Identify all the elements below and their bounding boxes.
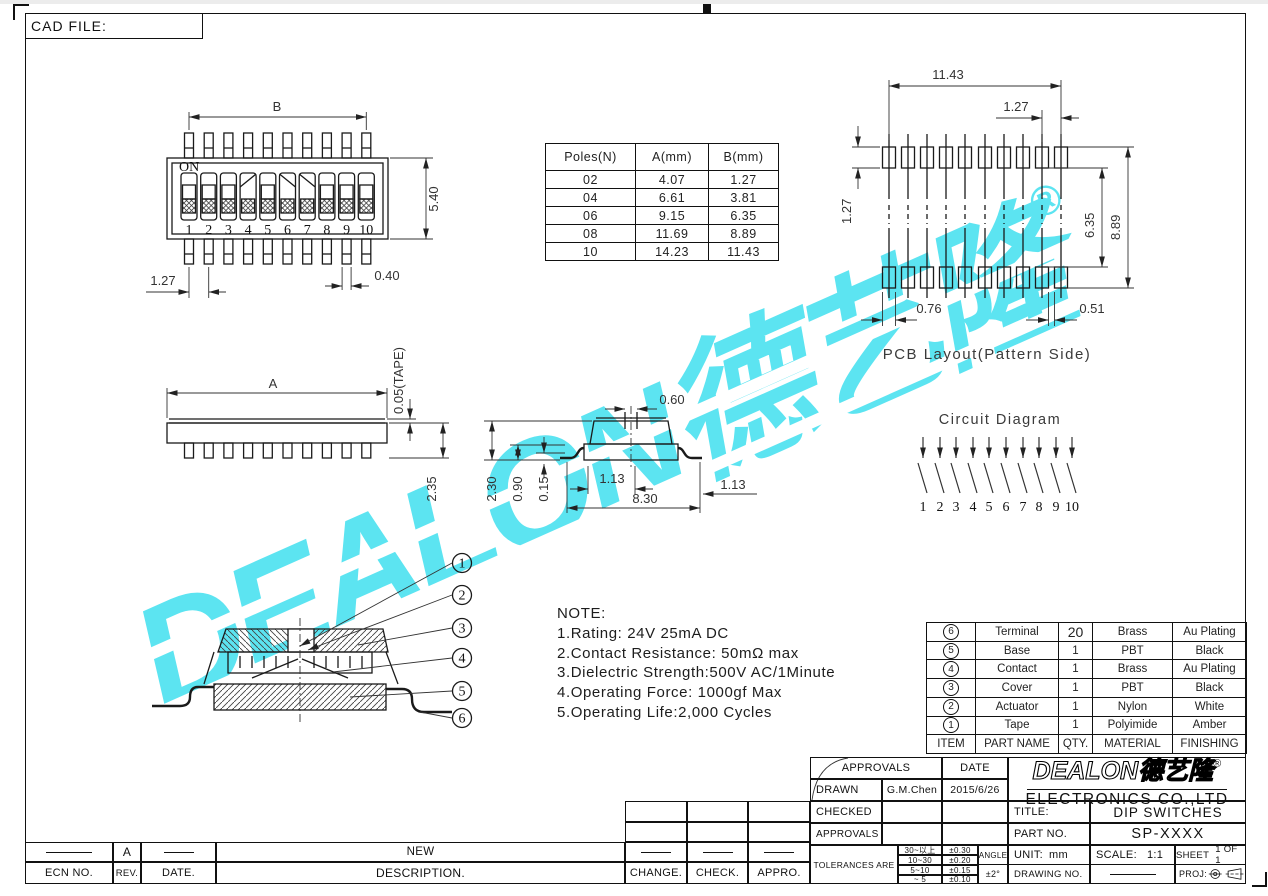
bom-part-name: Contact (976, 660, 1059, 679)
change-header-cell: CHANGE. (625, 862, 687, 884)
check-entry-cell (687, 842, 748, 862)
revision-empty-cell (687, 801, 748, 822)
position-number: 5 (264, 223, 271, 238)
position-number: 8 (323, 223, 330, 238)
blank-line (703, 852, 733, 853)
registered-mark-icon: ® (1213, 758, 1221, 770)
bom-material: Polyimide (1093, 717, 1173, 736)
tolerance-value: ±0.30 (942, 845, 978, 855)
revision-empty-cell (625, 801, 687, 822)
cell: 04 (546, 189, 636, 207)
section-view: 0.60 2.30 0.90 0.15 1.13 8.30 1.13 (484, 392, 757, 513)
revision-empty-cell (687, 822, 748, 842)
note-line: 3.Dielectric Strength:500V AC/1Minute (557, 663, 835, 683)
callout-number: 4 (459, 652, 466, 667)
cad-file-label: CAD FILE: (31, 18, 107, 34)
dim-lead-left: 1.13 (599, 471, 624, 486)
approved-date-cell (942, 823, 1008, 845)
part-no-label-cell: PART NO. (1008, 823, 1090, 845)
blank-line (46, 852, 92, 853)
tolerance-value: ±0.15 (942, 865, 978, 875)
angle-value-cell: ±2° (978, 864, 1008, 884)
cell: 3.81 (709, 189, 779, 207)
dim-pad-gap: 0.51 (1079, 301, 1104, 316)
bom-material: Brass (1093, 623, 1173, 642)
title-label-cell: TITLE: (1008, 801, 1090, 823)
bom-qty: 1 (1059, 660, 1093, 679)
bom-finish: Black (1173, 679, 1247, 698)
position-number: 9 (343, 223, 350, 238)
check-header-cell: CHECK. (687, 862, 748, 884)
blank-line (764, 852, 794, 853)
cell: 6.61 (636, 189, 709, 207)
dim-lead-right: 1.13 (720, 477, 745, 492)
cell: 11.69 (636, 225, 709, 243)
sheet-cell: SHEET1 OF 1 (1175, 845, 1246, 865)
on-label: ON (179, 160, 199, 175)
dim-830: 8.30 (632, 491, 657, 506)
checked-label-cell: CHECKED (810, 801, 882, 823)
date-entry-cell (141, 842, 216, 862)
engineering-drawing-sheet: DEALON德艺隆® CAD FILE: (0, 0, 1268, 896)
bom-material: PBT (1093, 679, 1173, 698)
bom-item: 4 (927, 660, 976, 679)
bom-header: ITEM (927, 735, 976, 754)
bom-item: 1 (927, 717, 976, 736)
dim-pcb-outer: 8.89 (1108, 215, 1123, 240)
dim-a: A (269, 376, 278, 391)
bom-qty: 1 (1059, 642, 1093, 661)
checked-date-cell (942, 801, 1008, 823)
note-line: 5.Operating Life:2,000 Cycles (557, 703, 835, 723)
circuit-number: 10 (1065, 500, 1079, 515)
cell: 06 (546, 207, 636, 225)
tolerances-label-cell: TOLERANCES ARE (810, 845, 898, 884)
checked-by-cell (882, 801, 942, 823)
notes: NOTE: 1.Rating: 24V 25mA DC 2.Contact Re… (557, 604, 835, 723)
pcb-layout-title: PCB Layout(Pattern Side) (883, 346, 1092, 363)
circuit-number: 9 (1053, 500, 1060, 515)
description-header-cell: DESCRIPTION. (216, 862, 625, 884)
blank-line (1110, 874, 1156, 875)
date-header-cell: DATE. (141, 862, 216, 884)
poles-table: Poles(N) A(mm) B(mm) 024.071.27 046.613.… (545, 143, 779, 261)
scale-cell: SCALE:1:1 (1090, 845, 1175, 865)
bom-item: 3 (927, 679, 976, 698)
dim-tape: 0.05(TAPE) (391, 347, 406, 414)
bom-finish: White (1173, 698, 1247, 717)
position-number: 10 (359, 223, 373, 238)
bom-qty: 1 (1059, 717, 1093, 736)
callout-number: 5 (459, 685, 466, 700)
dim-pad-width: 0.76 (916, 301, 941, 316)
callout-number: 3 (459, 622, 466, 637)
circled-number: 5 (943, 643, 959, 659)
bom-finish: Amber (1173, 717, 1247, 736)
bom-finish: Au Plating (1173, 623, 1247, 642)
blank-line (164, 852, 194, 853)
blank-line (641, 852, 671, 853)
callout-number: 6 (459, 712, 466, 727)
cell: 08 (546, 225, 636, 243)
unit-cell: UNIT:mm (1008, 845, 1090, 865)
circuit-number: 4 (970, 500, 977, 515)
bom-item: 2 (927, 698, 976, 717)
tolerance-value: ±0.10 (942, 875, 978, 884)
angle-label-cell: ANGLE (978, 845, 1008, 865)
bom-qty: 1 (1059, 679, 1093, 698)
drawing-no-value-cell (1090, 864, 1175, 884)
circuit-number: 1 (920, 500, 927, 515)
tolerance-range: ~ 5 (898, 875, 942, 884)
bom-table: 6 Terminal 20 Brass Au Plating 5 Base 1 … (926, 622, 1247, 754)
revision-empty-cell (748, 801, 810, 822)
callout-number: 2 (459, 589, 466, 604)
cell: 1.27 (709, 171, 779, 189)
dim-235: 2.35 (424, 476, 439, 501)
rev-entry-cell: A (113, 842, 141, 862)
side-view: A 0.05(TAPE) 2.35 (167, 347, 449, 502)
ecn-header-cell: ECN NO. (25, 862, 113, 884)
bom-part-name: Actuator (976, 698, 1059, 717)
position-number: 3 (225, 223, 232, 238)
bom-part-name: Tape (976, 717, 1059, 736)
circled-number: 6 (943, 624, 959, 640)
drawn-by-cell: G.M.Chen (882, 779, 942, 801)
cell: 8.89 (709, 225, 779, 243)
dim-pcb-width: 11.43 (932, 67, 964, 82)
tolerance-value: ±0.20 (942, 855, 978, 865)
poles-header: Poles(N) (546, 144, 636, 171)
dealon-logo: DEALON德艺隆® (1027, 750, 1228, 790)
circuit-title: Circuit Diagram (939, 412, 1061, 428)
bom-qty: 1 (1059, 698, 1093, 717)
tolerance-range: 10~30 (898, 855, 942, 865)
dim-pad-height: 1.27 (839, 199, 854, 224)
circuit-number: 7 (1020, 500, 1027, 515)
drawn-label-cell: DRAWN (810, 779, 882, 801)
dim-pcb-pitch: 1.27 (1003, 99, 1028, 114)
dim-pcb-inner: 6.35 (1082, 213, 1097, 238)
projection-symbol-icon (1208, 866, 1245, 882)
bom-material: Nylon (1093, 698, 1173, 717)
drawn-date-cell: 2015/6/26 (942, 779, 1008, 801)
cell: 02 (546, 171, 636, 189)
cell: 10 (546, 243, 636, 261)
bom-item: 6 (927, 623, 976, 642)
bom-finish: Black (1173, 642, 1247, 661)
position-number: 4 (245, 223, 252, 238)
bom-part-name: Terminal (976, 623, 1059, 642)
bom-finish: Au Plating (1173, 660, 1247, 679)
dim-540: 5.40 (426, 186, 441, 211)
approvals-header-cell: APPROVALS (810, 757, 942, 779)
position-number: 1 (186, 223, 193, 238)
poles-header: B(mm) (709, 144, 779, 171)
drawing-no-label-cell: DRAWING NO. (1008, 864, 1090, 884)
rev-header-cell: REV. (113, 862, 141, 884)
callout-number: 1 (459, 557, 466, 572)
circuit-number: 2 (937, 500, 944, 515)
bom-material: PBT (1093, 642, 1173, 661)
appro-header-cell: APPRO. (748, 862, 810, 884)
bom-item: 5 (927, 642, 976, 661)
circled-number: 4 (943, 661, 959, 677)
circuit-number: 8 (1036, 500, 1043, 515)
circled-number: 1 (943, 717, 959, 733)
dim-pin-width: 0.40 (374, 268, 399, 283)
tolerance-range: 30~以上 (898, 845, 942, 855)
cell: 4.07 (636, 171, 709, 189)
pcb-layout: 11.43 1.27 1.27 6.35 8.89 0.76 0.51 PCB … (839, 67, 1134, 363)
bom-part-name: Base (976, 642, 1059, 661)
circled-number: 3 (943, 680, 959, 696)
cell: 11.43 (709, 243, 779, 261)
bom-part-name: Cover (976, 679, 1059, 698)
top-view: ON 1 2 3 4 5 6 7 8 9 10 (146, 99, 441, 298)
dim-pitch: 1.27 (150, 273, 175, 288)
cell: 6.35 (709, 207, 779, 225)
circuit-number: 5 (986, 500, 993, 515)
title-value-cell: DIP SWITCHES (1090, 801, 1246, 823)
circuit-number: 3 (953, 500, 960, 515)
circled-number: 2 (943, 699, 959, 715)
company-logo-cell: DEALON德艺隆® ELECTRONICS CO.,LTD (1008, 757, 1246, 801)
ecn-entry-cell (25, 842, 113, 862)
note-line: 1.Rating: 24V 25mA DC (557, 624, 835, 644)
change-entry-cell (625, 842, 687, 862)
position-number: 6 (284, 223, 291, 238)
description-entry-cell: NEW (216, 842, 625, 862)
part-no-value-cell: SP-XXXX (1090, 823, 1246, 845)
tolerance-range: 5~10 (898, 865, 942, 875)
note-line: 2.Contact Resistance: 50mΩ max (557, 644, 835, 664)
projection-cell: PROJ: (1175, 864, 1246, 884)
appro-entry-cell (748, 842, 810, 862)
position-number: 2 (205, 223, 212, 238)
circuit-number: 6 (1003, 500, 1010, 515)
revision-empty-cell (625, 822, 687, 842)
note-line: 4.Operating Force: 1000gf Max (557, 683, 835, 703)
bom-qty: 20 (1059, 623, 1093, 642)
cad-file-box: CAD FILE: (25, 13, 203, 39)
dim-090: 0.90 (510, 476, 525, 501)
approved-by-cell (882, 823, 942, 845)
notes-title: NOTE: (557, 604, 835, 624)
approved-label-cell: APPROVALS (810, 823, 882, 845)
poles-header: A(mm) (636, 144, 709, 171)
circuit-diagram: Circuit Diagram 1 2 3 4 5 6 7 8 9 10 (918, 412, 1079, 515)
dim-015: 0.15 (536, 476, 551, 501)
date-header-cell: DATE (942, 757, 1008, 779)
cell: 9.15 (636, 207, 709, 225)
dim-230: 2.30 (484, 476, 499, 501)
cutaway-view: 1 2 3 4 5 6 (152, 554, 472, 728)
dim-060: 0.60 (659, 392, 684, 407)
cell: 14.23 (636, 243, 709, 261)
dim-b: B (273, 99, 282, 114)
bom-material: Brass (1093, 660, 1173, 679)
position-number: 7 (304, 223, 311, 238)
revision-empty-cell (748, 822, 810, 842)
